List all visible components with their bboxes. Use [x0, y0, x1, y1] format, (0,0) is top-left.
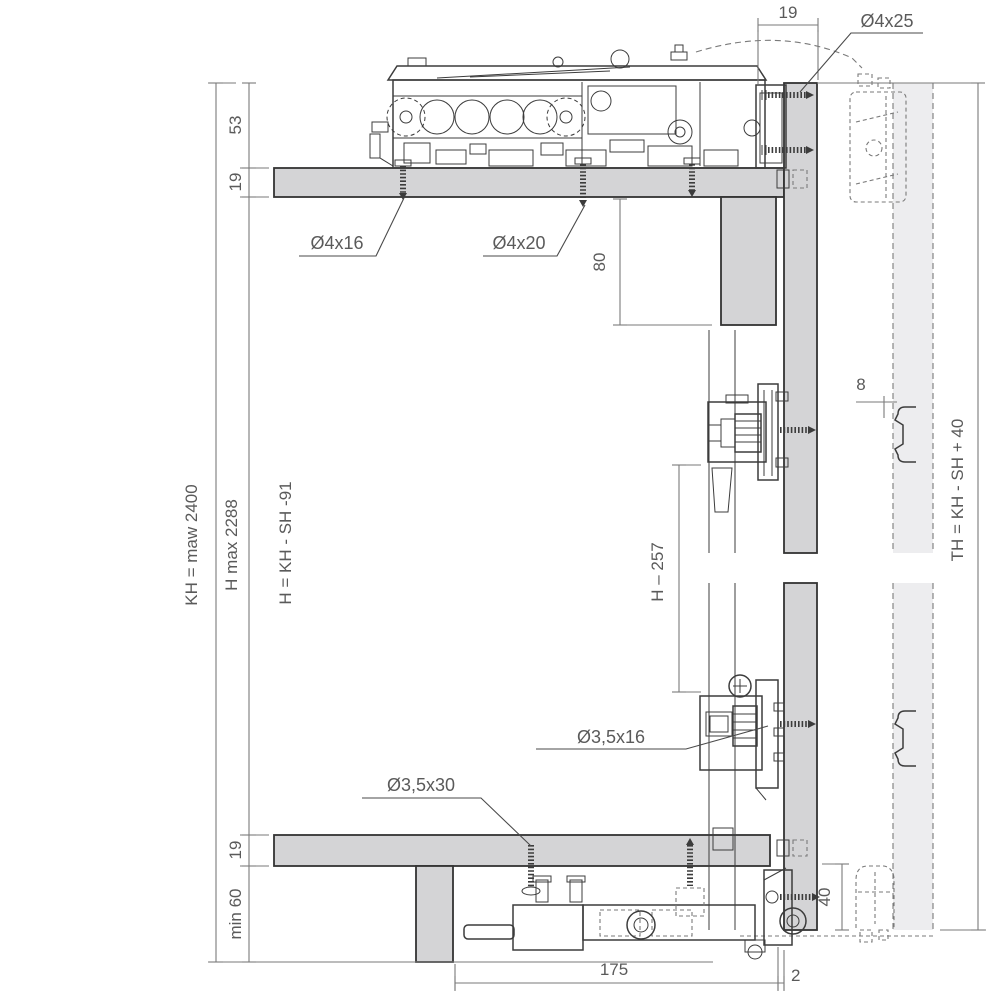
door-panel-lower — [784, 583, 817, 930]
installation-diagram: KH = maw 2400 53 19 H max 2288 H = KH - … — [0, 0, 1000, 1000]
label-bracket-spacing: H – 257 — [648, 542, 667, 602]
label-guide-height: 40 — [815, 888, 834, 907]
label-bottom-panel-thickness: 19 — [226, 841, 245, 860]
label-shelf-thickness: 19 — [226, 173, 245, 192]
label-clip-offset: 8 — [856, 375, 865, 394]
label-screw-o35x30: Ø3,5x30 — [387, 775, 455, 795]
label-screw-o4x20: Ø4x20 — [492, 233, 545, 253]
label-screw-o35x16: Ø3,5x16 — [577, 727, 645, 747]
label-screw-o4x25: Ø4x25 — [860, 11, 913, 31]
bottom-panel — [274, 835, 770, 866]
label-partition-height-formula: TH = KH - SH + 40 — [948, 419, 967, 562]
top-shelf-panel — [274, 168, 784, 197]
ghost-door-upper-fill — [893, 83, 933, 553]
ghost-door-lower-fill — [893, 583, 933, 930]
label-screw-o4x16: Ø4x16 — [310, 233, 363, 253]
label-height-max: H max 2288 — [222, 499, 241, 591]
label-door-height-formula: H = KH - SH -91 — [276, 481, 295, 604]
side-clearance-block — [721, 197, 776, 325]
label-guide-depth: 175 — [600, 960, 628, 979]
label-door-gap: 2 — [791, 966, 800, 985]
label-clearance-depth: 80 — [590, 253, 609, 272]
label-track-height: 53 — [226, 116, 245, 135]
label-plinth-min-height: min 60 — [226, 888, 245, 939]
plinth-leg — [416, 866, 453, 962]
technical-drawing-page: KH = maw 2400 53 19 H max 2288 H = KH - … — [0, 0, 1000, 1000]
label-cabinet-height: KH = maw 2400 — [182, 484, 201, 605]
door-panel-upper — [784, 83, 817, 553]
label-top-gap: 19 — [779, 3, 798, 22]
